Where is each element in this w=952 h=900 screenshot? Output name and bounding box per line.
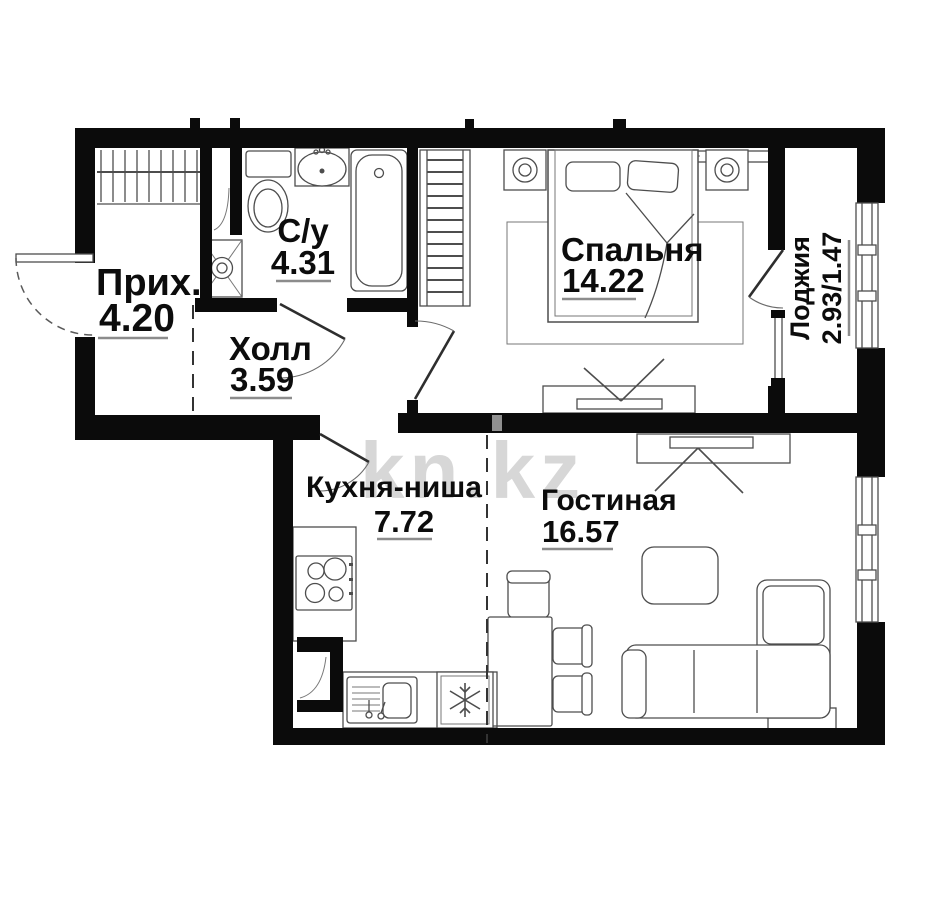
room-area-loggia: 2.93/1.47 bbox=[817, 232, 847, 345]
chair-back bbox=[582, 625, 592, 667]
loggia-window bbox=[856, 203, 878, 348]
living-window bbox=[856, 477, 878, 622]
floor-plan-page: kn.kz bbox=[0, 0, 952, 900]
room-label-loggia-group: Лоджия 2.93/1.47 bbox=[785, 232, 849, 345]
chair-back bbox=[507, 571, 550, 583]
room-area-hall: 3.59 bbox=[230, 361, 294, 398]
chair-back bbox=[582, 673, 592, 715]
room-area-kitchen: 7.72 bbox=[374, 504, 434, 539]
room-label-kitchen: Кухня-ниша bbox=[306, 471, 482, 504]
nightstand-left bbox=[504, 150, 546, 190]
coffee-table bbox=[642, 547, 718, 604]
fridge bbox=[437, 672, 493, 728]
wall-notch bbox=[492, 415, 502, 431]
room-area-bedroom: 14.22 bbox=[562, 262, 645, 299]
room-label-loggia: Лоджия bbox=[785, 236, 815, 340]
room-area-hallway: 4.20 bbox=[99, 297, 175, 340]
kitchen-sink bbox=[347, 677, 417, 723]
nightstand-right bbox=[706, 150, 748, 190]
room-area-bathroom: 4.31 bbox=[271, 244, 335, 281]
floor-plan: kn.kz bbox=[0, 0, 952, 900]
room-area-living: 16.57 bbox=[542, 514, 620, 549]
bathtub bbox=[351, 150, 407, 291]
room-label-living: Гостиная bbox=[541, 484, 677, 517]
coat-rack bbox=[97, 150, 200, 204]
stove bbox=[296, 556, 353, 610]
